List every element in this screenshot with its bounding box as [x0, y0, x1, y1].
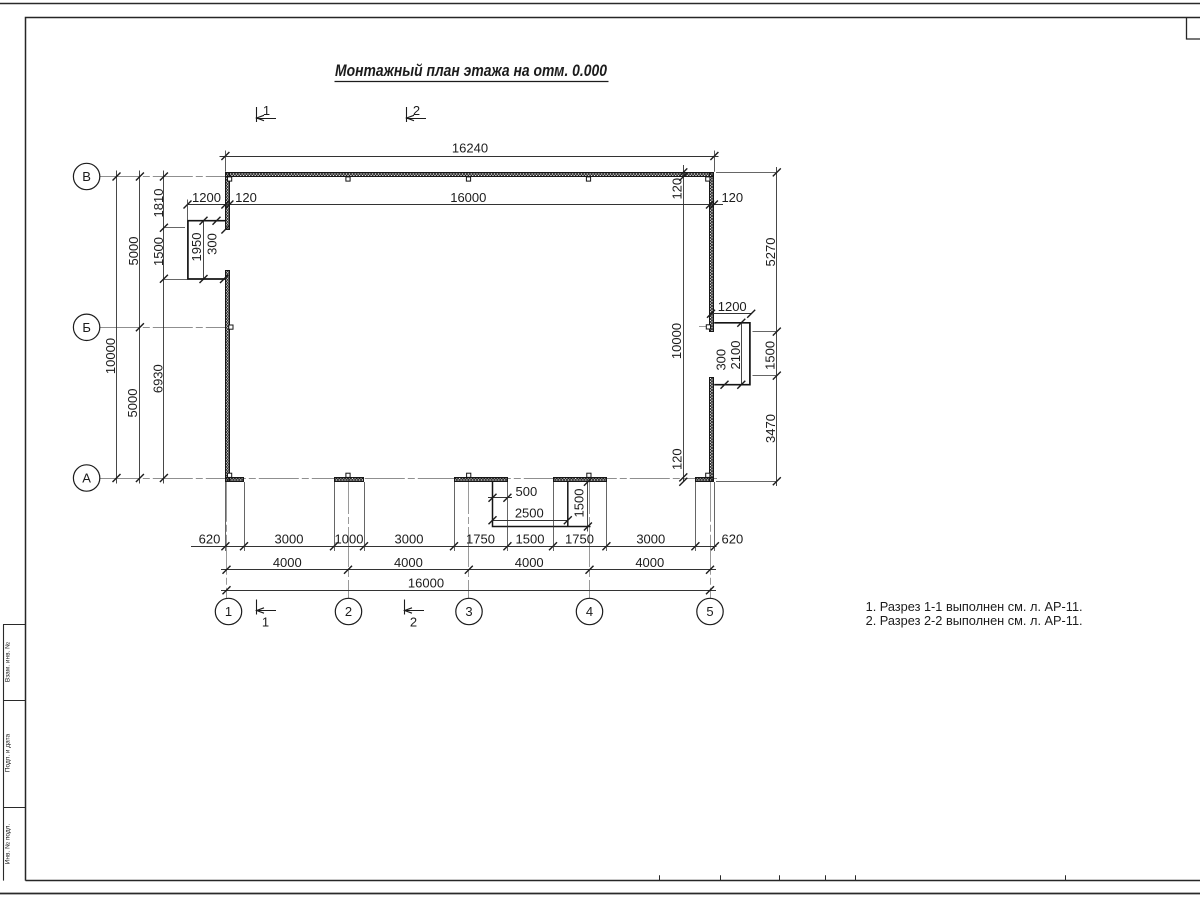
svg-text:1810: 1810: [151, 189, 166, 218]
svg-text:В: В: [82, 169, 91, 184]
svg-text:Монтажный план этажа на отм. 0: Монтажный план этажа на отм. 0.000: [335, 61, 607, 80]
svg-text:2. Разрез 2-2 выполнен см. л.: 2. Разрез 2-2 выполнен см. л. АР-11.: [866, 613, 1083, 628]
svg-text:Б: Б: [82, 320, 91, 335]
svg-text:1750: 1750: [565, 531, 594, 546]
svg-text:Подп. и дата: Подп. и дата: [5, 733, 12, 772]
svg-text:120: 120: [670, 448, 685, 470]
svg-text:3470: 3470: [763, 414, 778, 443]
svg-text:120: 120: [669, 178, 684, 200]
svg-text:6930: 6930: [150, 364, 165, 393]
svg-text:10000: 10000: [669, 323, 684, 359]
svg-text:1500: 1500: [516, 531, 545, 546]
svg-text:1200: 1200: [718, 299, 747, 314]
svg-text:3000: 3000: [636, 531, 665, 546]
svg-text:4: 4: [586, 604, 593, 619]
svg-text:300: 300: [713, 349, 728, 371]
svg-text:1000: 1000: [335, 531, 364, 546]
svg-text:5270: 5270: [763, 238, 778, 267]
svg-text:5: 5: [706, 604, 713, 619]
svg-text:4000: 4000: [273, 555, 302, 570]
svg-text:2: 2: [413, 103, 420, 118]
svg-text:2: 2: [345, 604, 352, 619]
svg-text:1950: 1950: [189, 233, 204, 262]
svg-text:16000: 16000: [408, 575, 444, 590]
svg-text:2: 2: [410, 615, 417, 630]
svg-text:1500: 1500: [151, 237, 166, 266]
svg-text:3: 3: [465, 604, 472, 619]
svg-text:120: 120: [235, 190, 257, 205]
svg-text:Взам. инв. №: Взам. инв. №: [5, 642, 12, 682]
svg-text:1: 1: [225, 604, 232, 619]
svg-text:16000: 16000: [450, 190, 486, 205]
svg-text:3000: 3000: [275, 531, 304, 546]
svg-text:1. Разрез 1-1 выполнен см. л.: 1. Разрез 1-1 выполнен см. л. АР-11.: [866, 599, 1083, 614]
svg-text:10000: 10000: [103, 338, 118, 374]
svg-text:А: А: [82, 471, 91, 486]
svg-text:Инв. № подл.: Инв. № подл.: [5, 824, 12, 865]
svg-text:620: 620: [722, 531, 744, 546]
svg-text:1500: 1500: [763, 341, 778, 370]
svg-text:5000: 5000: [126, 237, 141, 266]
svg-text:4000: 4000: [394, 555, 423, 570]
svg-text:1750: 1750: [466, 531, 495, 546]
svg-text:620: 620: [199, 531, 221, 546]
svg-text:2500: 2500: [515, 505, 544, 520]
svg-text:2100: 2100: [728, 341, 743, 370]
svg-text:4000: 4000: [515, 555, 544, 570]
svg-text:1: 1: [262, 615, 269, 630]
svg-text:300: 300: [204, 233, 219, 255]
svg-text:1500: 1500: [572, 489, 587, 518]
svg-text:3000: 3000: [395, 531, 424, 546]
svg-text:1200: 1200: [192, 190, 221, 205]
svg-text:120: 120: [721, 190, 743, 205]
svg-text:4000: 4000: [635, 555, 664, 570]
svg-text:500: 500: [516, 484, 538, 499]
svg-text:5000: 5000: [125, 389, 140, 418]
svg-text:16240: 16240: [452, 140, 488, 155]
svg-text:1: 1: [263, 103, 270, 118]
